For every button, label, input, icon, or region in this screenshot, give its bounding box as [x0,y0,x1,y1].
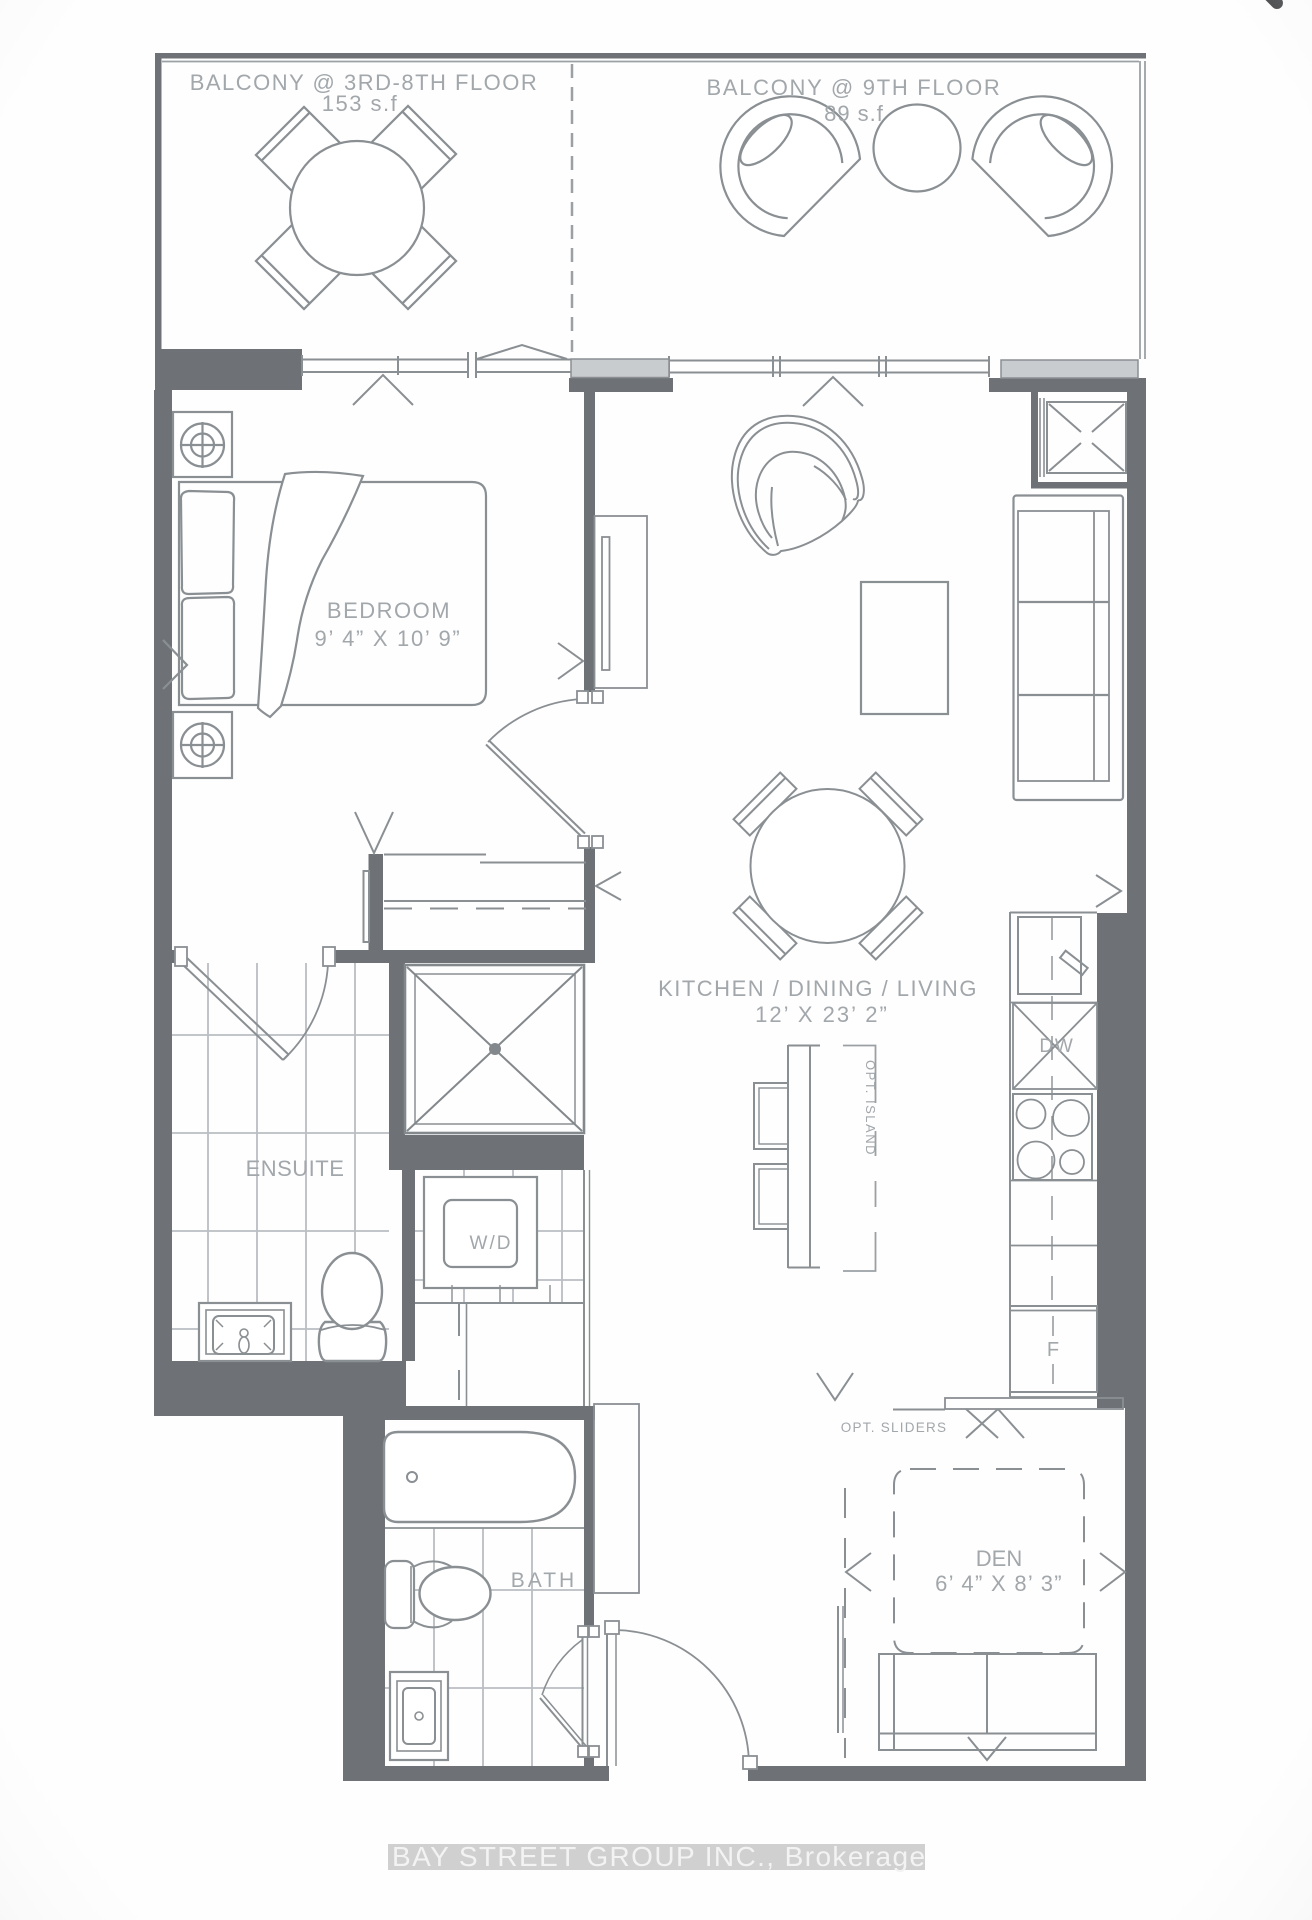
svg-text:BEDROOM: BEDROOM [327,598,451,623]
svg-text:DW: DW [1039,1036,1074,1057]
svg-text:BAY STREET GROUP INC., Brokera: BAY STREET GROUP INC., Brokerage [392,1841,926,1872]
svg-text:OPT. ISLAND: OPT. ISLAND [863,1060,878,1156]
svg-text:F: F [1047,1339,1059,1361]
svg-text:DEN: DEN [976,1546,1022,1571]
svg-text:9’ 4” X 10’ 9”: 9’ 4” X 10’ 9” [315,626,462,651]
svg-text:ENSUITE: ENSUITE [246,1156,345,1181]
svg-text:OPT. SLIDERS: OPT. SLIDERS [841,1420,948,1435]
svg-text:89 s.f: 89 s.f [824,101,884,126]
svg-text:BATH: BATH [511,1569,577,1592]
svg-text:KITCHEN / DINING / LIVING: KITCHEN / DINING / LIVING [658,976,978,1001]
svg-text:6’ 4” X 8’ 3”: 6’ 4” X 8’ 3” [935,1571,1063,1596]
svg-text:BALCONY @ 9TH FLOOR: BALCONY @ 9TH FLOOR [706,75,1001,100]
svg-text:12’ X 23’ 2”: 12’ X 23’ 2” [755,1002,889,1027]
svg-text:W/D: W/D [470,1233,513,1254]
svg-text:153 s.f: 153 s.f [322,91,399,116]
